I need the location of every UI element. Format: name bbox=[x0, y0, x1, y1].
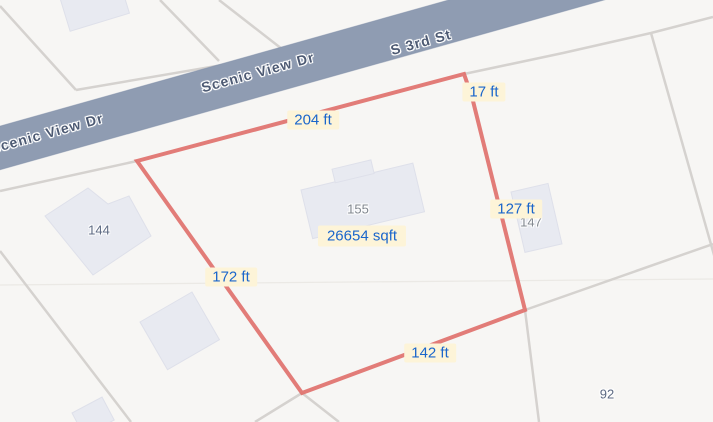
measurement-chip-204ft: 204 ft bbox=[287, 111, 339, 130]
building-footprint-bottom-edge bbox=[72, 397, 114, 422]
house-number-144: 144 bbox=[88, 223, 110, 238]
building-footprint-top-left bbox=[52, 0, 129, 31]
map-canvas[interactable]: Scenic View Dr Scenic View Dr S 3rd St 1… bbox=[0, 0, 713, 422]
measurement-chip-127ft: 127 ft bbox=[490, 200, 542, 219]
building-footprint-south bbox=[140, 292, 219, 370]
road-shape-scenic-view-dr bbox=[0, 0, 713, 183]
house-number-92: 92 bbox=[600, 387, 614, 402]
house-number-155: 155 bbox=[347, 202, 369, 217]
measurement-chip-172ft: 172 ft bbox=[205, 268, 257, 287]
area-measurement-chip: 26654 sqft bbox=[318, 226, 406, 247]
measurement-chip-17ft: 17 ft bbox=[462, 83, 505, 102]
measurement-chip-142ft: 142 ft bbox=[404, 344, 456, 363]
